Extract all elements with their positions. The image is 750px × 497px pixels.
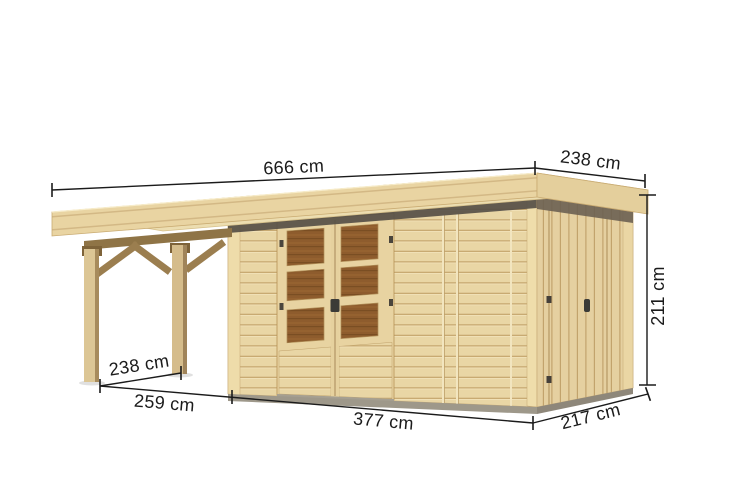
door-hinge	[280, 240, 284, 247]
side-door-handle	[584, 299, 590, 312]
dim-label-roof-depth: 238 cm	[559, 146, 622, 173]
door-window-pane	[287, 307, 324, 343]
side-door-hinge	[547, 376, 552, 383]
door-lock-handle	[331, 299, 340, 312]
product-dimension-diagram: 666 cm 238 cm 211 cm 238 cm 259 cm 377 c…	[0, 0, 750, 497]
door-window-pane	[341, 303, 378, 339]
side-rear-corner-trim	[623, 210, 633, 390]
front-left-corner-trim	[228, 221, 240, 395]
dim-label-canopy-spacing: 238 cm	[107, 350, 170, 379]
door-window-pane	[287, 269, 324, 301]
canopy-brace	[132, 244, 170, 272]
shed-side-wall	[537, 197, 633, 407]
dim-label-height: 211 cm	[648, 266, 668, 326]
door-hinge	[389, 299, 393, 306]
door-window-pane	[341, 224, 378, 262]
door-bottom-planks	[279, 347, 331, 396]
shed-illustration-svg: 666 cm 238 cm 211 cm 238 cm 259 cm 377 c…	[0, 0, 750, 497]
dim-label-canopy-width: 259 cm	[133, 391, 195, 416]
door-window-pane	[341, 265, 378, 297]
door-bottom-planks	[339, 342, 392, 399]
canopy-post-left	[84, 249, 99, 382]
canopy-brace	[97, 244, 138, 274]
dim-label-roof-width: 666 cm	[263, 156, 325, 179]
front-right-corner-trim	[527, 197, 537, 407]
canopy-brace	[186, 242, 224, 270]
canopy-post-right	[172, 245, 187, 374]
door-hinge	[389, 236, 393, 243]
double-door	[277, 213, 394, 403]
door-window-pane	[287, 228, 324, 266]
door-hinge	[280, 303, 284, 310]
side-door-hinge	[547, 296, 552, 303]
dim-label-shed-width: 377 cm	[352, 408, 414, 433]
